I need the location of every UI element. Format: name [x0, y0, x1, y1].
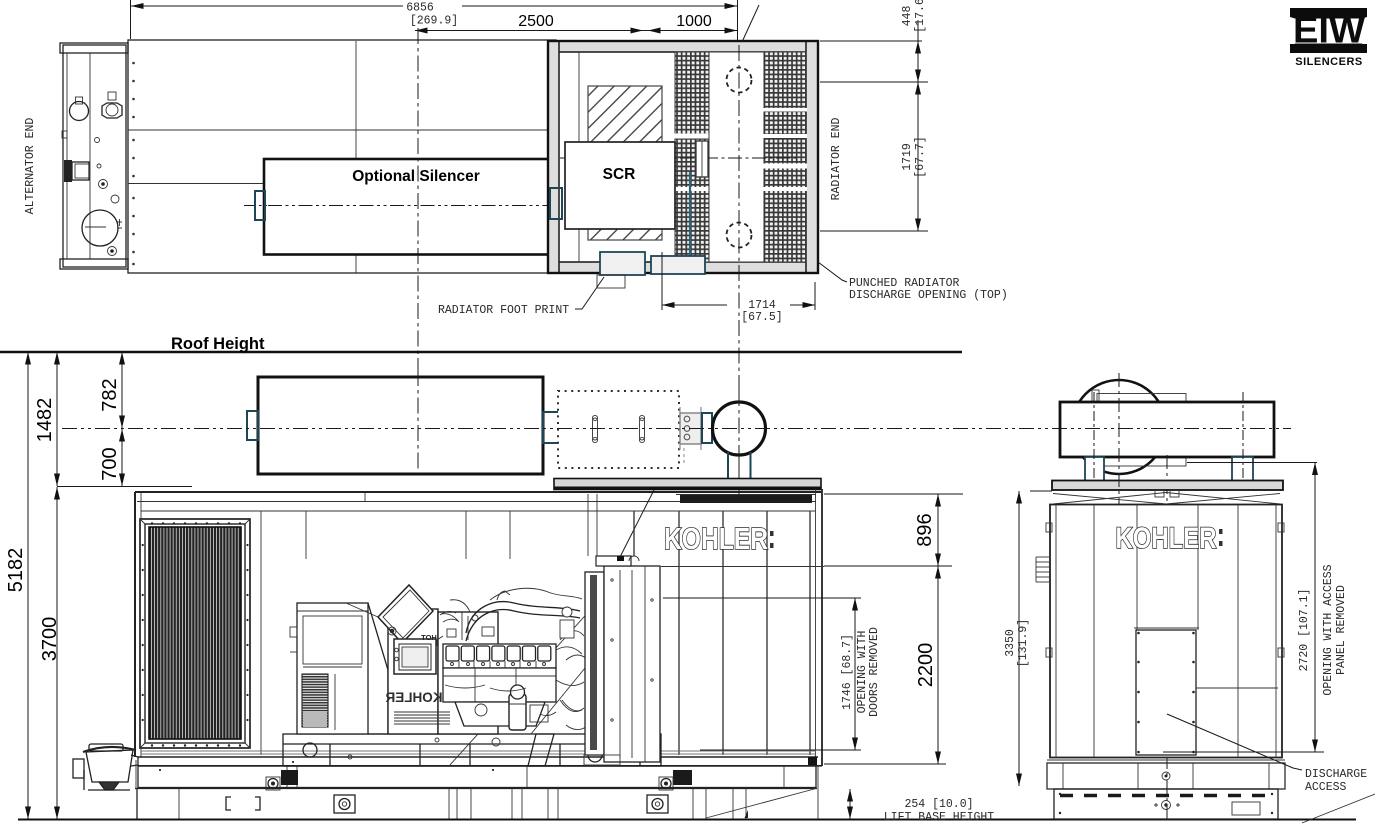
svg-text:2200: 2200: [915, 643, 937, 688]
svg-text:PANEL REMOVED: PANEL REMOVED: [1335, 585, 1348, 675]
svg-text:KOHLER: KOHLER: [1116, 522, 1217, 555]
svg-text:1719: 1719: [901, 143, 914, 171]
svg-text:6856: 6856: [406, 2, 434, 15]
svg-text:TOH: TOH: [421, 633, 437, 642]
svg-text:OPENING WITH ACCESS: OPENING WITH ACCESS: [1322, 564, 1335, 695]
svg-text:782: 782: [99, 378, 121, 411]
svg-text:KOHLER: KOHLER: [664, 521, 768, 556]
svg-text:896: 896: [914, 513, 936, 546]
svg-text:3350: 3350: [1004, 629, 1017, 657]
svg-text:3700: 3700: [39, 617, 61, 662]
svg-text:[67.5]: [67.5]: [741, 311, 782, 324]
svg-text:2720 [107.1]: 2720 [107.1]: [1298, 589, 1311, 672]
svg-text:Roof Height: Roof Height: [171, 335, 265, 353]
svg-text:ACCESS: ACCESS: [1305, 781, 1347, 794]
svg-text:2500: 2500: [518, 13, 554, 30]
svg-text:448: 448: [901, 6, 914, 27]
svg-text:KOHLER: KOHLER: [385, 690, 442, 705]
svg-text:LIFT BASE HEIGHT: LIFT BASE HEIGHT: [884, 811, 995, 824]
svg-text:DISCHARGE: DISCHARGE: [1305, 768, 1367, 781]
svg-text:RADIATOR FOOT PRINT: RADIATOR FOOT PRINT: [438, 304, 569, 317]
svg-text:DOORS REMOVED: DOORS REMOVED: [868, 627, 881, 717]
svg-text:EIW: EIW: [1293, 10, 1365, 51]
svg-text:5182: 5182: [5, 548, 27, 593]
svg-text:ALTERNATOR END: ALTERNATOR END: [24, 118, 37, 215]
svg-text:1482: 1482: [34, 398, 56, 443]
svg-text:[269.9]: [269.9]: [410, 15, 458, 28]
svg-text:254 [10.0]: 254 [10.0]: [904, 798, 973, 811]
svg-text:SCR: SCR: [603, 166, 636, 183]
svg-text:DISCHARGE OPENING (TOP): DISCHARGE OPENING (TOP): [849, 289, 1008, 302]
svg-text:1746 [68.7]: 1746 [68.7]: [841, 634, 854, 710]
svg-text:[131.9]: [131.9]: [1017, 619, 1030, 667]
svg-text:RADIATOR END: RADIATOR END: [830, 118, 843, 201]
svg-text:[67.7]: [67.7]: [914, 136, 927, 177]
svg-text:Optional Silencer: Optional Silencer: [352, 168, 479, 185]
svg-text:700: 700: [99, 447, 121, 480]
svg-text:SILENCERS: SILENCERS: [1295, 56, 1362, 68]
svg-text:[17.6]: [17.6]: [914, 0, 927, 33]
svg-text:1000: 1000: [676, 13, 712, 30]
